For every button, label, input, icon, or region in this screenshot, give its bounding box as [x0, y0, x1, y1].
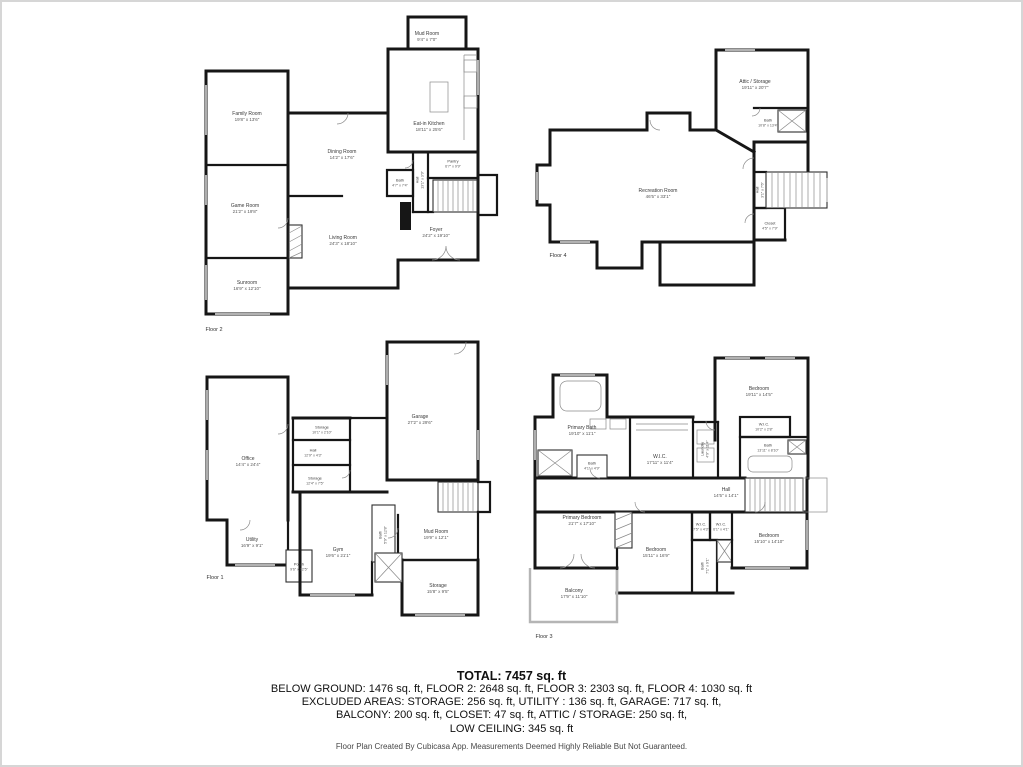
floor-2-plan	[206, 17, 497, 314]
window-marks	[537, 50, 827, 242]
shower-icon	[375, 553, 402, 582]
area-summary: TOTAL: 7457 sq. ft BELOW GROUND: 1476 sq…	[0, 669, 1023, 736]
floor-3-plan	[530, 358, 827, 622]
kitchen-fixtures-icon	[430, 55, 477, 140]
floor-areas-text: BELOW GROUND: 1476 sq. ft, FLOOR 2: 2648…	[0, 683, 1023, 696]
floor-label: Floor 3	[535, 634, 552, 640]
shower-icon	[717, 540, 732, 562]
floor-plan-page: Mud Room9'4" x 7'0" Eat-in Kitchen18'11"…	[0, 0, 1023, 767]
window-marks	[207, 355, 478, 615]
floor-label: Floor 1	[206, 575, 223, 581]
shower-icon	[778, 110, 806, 132]
disclaimer-text: Floor Plan Created By Cubicasa App. Meas…	[0, 742, 1023, 751]
excluded-areas-text: EXCLUDED AREAS: STORAGE: 256 sq. ft, UTI…	[0, 696, 1023, 709]
shower-icon	[788, 440, 806, 454]
bathtub-icon	[748, 456, 792, 472]
door-arcs	[560, 421, 765, 568]
laundry-machines-icon	[697, 430, 714, 462]
floor-label: Floor 2	[205, 327, 222, 333]
door-arcs	[650, 108, 760, 223]
excluded-areas-text-2: BALCONY: 200 sq. ft, CLOSET: 47 sq. ft, …	[0, 709, 1023, 722]
total-area-text: TOTAL: 7457 sq. ft	[0, 669, 1023, 683]
hatched-wall-icon	[289, 225, 302, 258]
window-marks	[535, 358, 807, 568]
stairs-icon	[745, 478, 803, 512]
stairs-icon	[433, 180, 477, 212]
door-arcs	[240, 342, 466, 538]
chimney-icon	[400, 202, 411, 230]
floor-4-plan	[537, 50, 827, 285]
floor-label: Floor 4	[549, 253, 566, 259]
garage-outline	[387, 342, 478, 480]
bathtub-icon	[560, 381, 601, 411]
shower-icon	[538, 450, 572, 476]
low-ceiling-text: LOW CEILING: 345 sq. ft	[0, 723, 1023, 736]
floor-plan-drawing	[0, 0, 1023, 767]
stairs-icon	[766, 172, 827, 208]
balcony-outline	[530, 568, 617, 622]
floor-1-plan	[207, 342, 490, 615]
hatched-wall-icon	[615, 512, 632, 548]
stairs-icon	[438, 482, 478, 512]
vanity-icon	[590, 419, 626, 429]
closet-rail-icon	[636, 424, 688, 430]
